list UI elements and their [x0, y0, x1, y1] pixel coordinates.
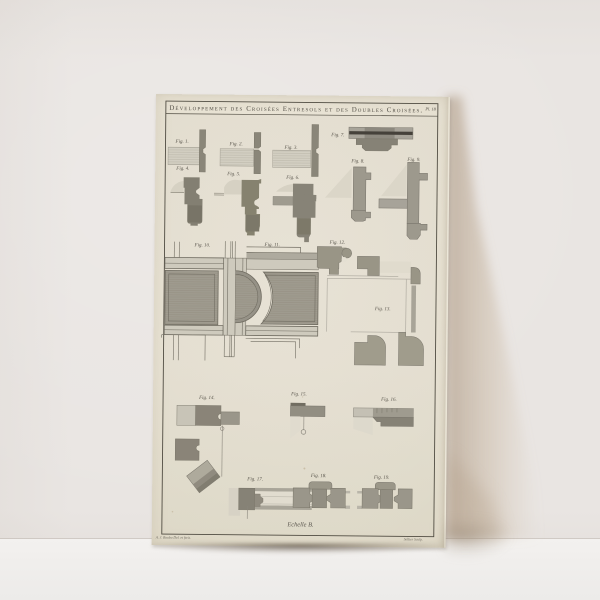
- svg-text:Sellier Sculp.: Sellier Sculp.: [404, 537, 423, 541]
- svg-text:Fig. 12.: Fig. 12.: [329, 241, 346, 246]
- svg-text:Fig. 6.: Fig. 6.: [285, 176, 299, 181]
- svg-text:Echelle B.: Echelle B.: [286, 521, 314, 528]
- svg-text:Fig. 13.: Fig. 13.: [374, 307, 391, 312]
- svg-text:Fig. 16.: Fig. 16.: [380, 398, 397, 403]
- svg-text:Fig. 8.: Fig. 8.: [350, 159, 364, 164]
- svg-text:Fig. 4.: Fig. 4.: [175, 167, 189, 172]
- svg-text:Pl. 18: Pl. 18: [424, 106, 436, 111]
- svg-text:Fig. 15.: Fig. 15.: [290, 392, 307, 397]
- svg-text:Fig. 19.: Fig. 19.: [373, 476, 390, 481]
- svg-text:Fig. 7.: Fig. 7.: [330, 133, 344, 138]
- svg-text:Fig. 18.: Fig. 18.: [310, 474, 327, 479]
- svg-text:Fig. 1.: Fig. 1.: [175, 140, 189, 145]
- svg-text:A. J. Roubo Del. et fecit.: A. J. Roubo Del. et fecit.: [155, 536, 191, 540]
- svg-text:Fig. 5.: Fig. 5.: [226, 172, 240, 177]
- svg-text:Fig. 17.: Fig. 17.: [246, 477, 263, 482]
- svg-text:Fig. 2.: Fig. 2.: [228, 142, 242, 147]
- svg-text:Fig. 10.: Fig. 10.: [194, 243, 211, 248]
- svg-text:Développement des Croisées Ent: Développement des Croisées Entresols et …: [169, 105, 422, 114]
- svg-text:Fig. 14.: Fig. 14.: [198, 396, 215, 401]
